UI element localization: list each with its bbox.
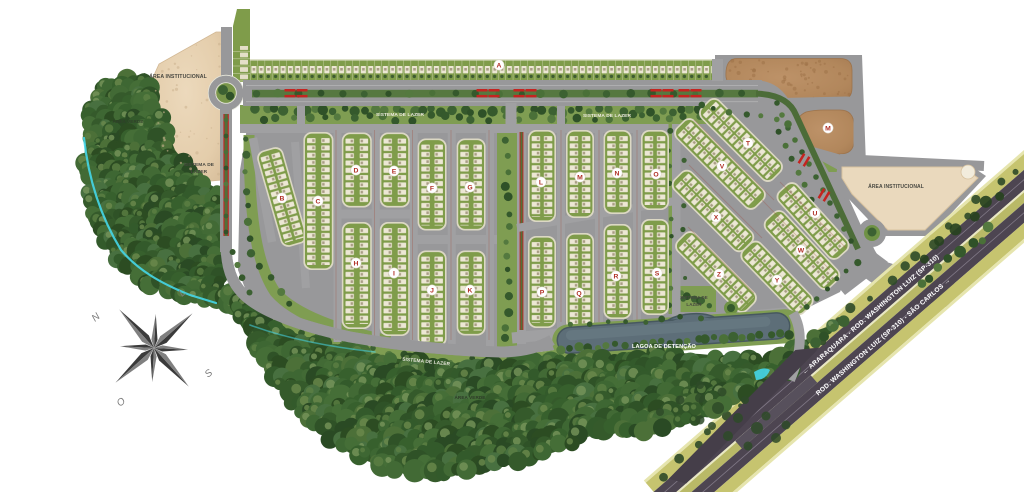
svg-text:SISTEMA DE: SISTEMA DE <box>184 162 215 168</box>
svg-text:LAGOA DE DETENÇÃO: LAGOA DE DETENÇÃO <box>632 343 697 350</box>
svg-text:Y: Y <box>775 277 780 284</box>
svg-text:A: A <box>497 62 502 69</box>
svg-text:E: E <box>392 168 397 175</box>
svg-text:P: P <box>540 289 545 296</box>
svg-text:LAZER: LAZER <box>191 169 208 175</box>
svg-text:B: B <box>280 195 285 202</box>
svg-text:F: F <box>430 185 434 192</box>
svg-text:M: M <box>825 125 831 132</box>
svg-text:ÁREA VERDE: ÁREA VERDE <box>113 118 144 124</box>
svg-text:H: H <box>354 260 359 267</box>
svg-text:N: N <box>615 170 620 177</box>
svg-text:J: J <box>430 287 434 294</box>
svg-text:Q: Q <box>576 290 581 297</box>
svg-text:SISTEMA DE: SISTEMA DE <box>680 295 708 300</box>
svg-text:L: L <box>539 179 543 186</box>
svg-text:V: V <box>720 163 725 170</box>
svg-text:X: X <box>714 214 719 221</box>
svg-text:Z: Z <box>717 271 721 278</box>
svg-text:S: S <box>655 270 660 277</box>
svg-text:G: G <box>467 184 472 191</box>
svg-text:K: K <box>468 287 473 294</box>
svg-text:W: W <box>798 247 805 254</box>
svg-text:ÁREA VERDE: ÁREA VERDE <box>455 394 486 400</box>
svg-text:D: D <box>354 167 359 174</box>
svg-text:M: M <box>577 174 583 181</box>
svg-text:SISTEMA DE LAZER: SISTEMA DE LAZER <box>376 112 424 118</box>
svg-text:ÁREA INSTITUCIONAL: ÁREA INSTITUCIONAL <box>149 73 208 80</box>
svg-text:LAZER: LAZER <box>686 302 702 307</box>
svg-text:C: C <box>316 198 321 205</box>
svg-text:R: R <box>614 273 619 280</box>
svg-text:I: I <box>393 270 395 277</box>
svg-text:ÁREA INSTITUCIONAL: ÁREA INSTITUCIONAL <box>868 183 924 190</box>
svg-text:U: U <box>813 210 818 217</box>
svg-text:SISTEMA DE LAZER: SISTEMA DE LAZER <box>583 113 631 119</box>
svg-text:O: O <box>653 171 658 178</box>
